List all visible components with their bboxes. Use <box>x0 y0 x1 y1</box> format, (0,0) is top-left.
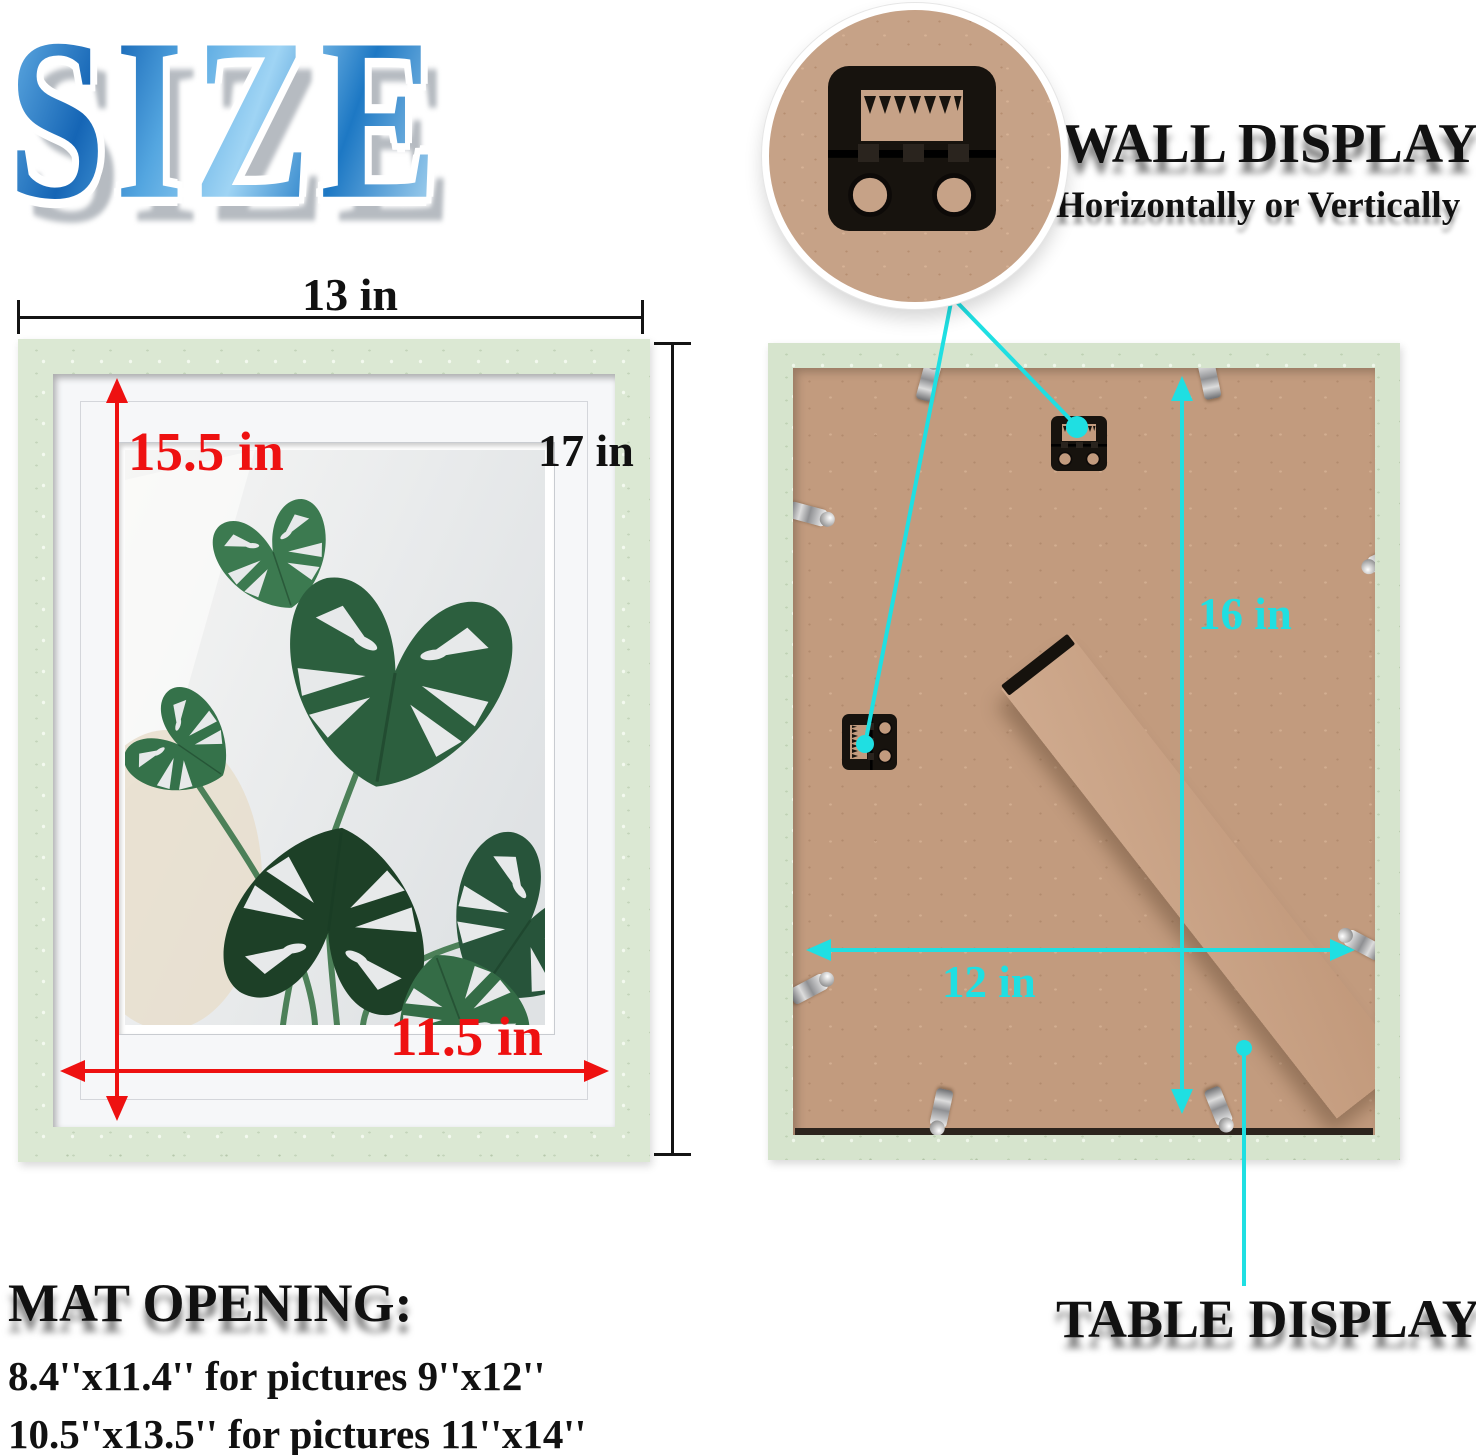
page-title: SIZE SIZE SIZE <box>8 4 528 268</box>
metal-clip-icon <box>793 973 829 1006</box>
product-size-infographic: SIZE SIZE SIZE WALL DISPLAY Horizontally… <box>0 0 1476 1455</box>
front-width-right-tick <box>641 300 644 334</box>
front-width-left-tick <box>17 300 20 334</box>
front-width-dimension-line <box>19 316 643 319</box>
mat-height-arrow <box>103 378 131 1121</box>
mat-width-arrow <box>60 1057 609 1085</box>
mat-opening-heading: MAT OPENING: <box>8 1272 413 1334</box>
back-width-arrow <box>806 936 1355 964</box>
front-height-dimension-line <box>671 342 674 1156</box>
wall-display-subheading: Horizontally or Vertically <box>1056 184 1460 227</box>
kraft-backing-board <box>793 368 1375 1135</box>
callout-line-table-display <box>1242 1048 1246 1286</box>
monstera-plant-photo <box>125 450 545 1025</box>
callout-dot-side-hanger <box>856 735 874 753</box>
metal-clip-icon <box>1204 1085 1234 1127</box>
sawtooth-hanger-icon <box>822 62 1002 238</box>
wall-display-heading: WALL DISPLAY <box>1062 112 1476 176</box>
front-width-dimension-label: 13 in <box>275 268 425 321</box>
page-title-fill: SIZE <box>8 4 447 235</box>
front-height-top-tick <box>654 342 691 345</box>
metal-clip-icon <box>1197 368 1222 400</box>
wall-hanger-inset-circle <box>762 3 1068 309</box>
mat-opening-line-1: 8.4''x11.4'' for pictures 9''x12'' <box>8 1352 545 1400</box>
back-height-arrow <box>1168 376 1196 1114</box>
back-height-dimension-label: 16 in <box>1198 588 1292 640</box>
front-height-bottom-tick <box>654 1153 691 1156</box>
metal-clip-icon <box>1367 542 1375 573</box>
mat-height-label: 15.5 in <box>128 420 284 483</box>
mat-opening-line-2: 10.5''x13.5'' for pictures 11''x14'' <box>8 1410 586 1455</box>
metal-clip-icon <box>929 1088 954 1129</box>
front-height-dimension-label: 17 in <box>538 424 634 477</box>
metal-clip-icon <box>793 501 828 527</box>
backing-bottom-gap <box>795 1128 1373 1135</box>
callout-dot-easel-leg <box>1236 1040 1252 1056</box>
table-display-heading: TABLE DISPLAY <box>1056 1288 1476 1350</box>
callout-dot-top-hanger <box>1066 416 1088 438</box>
easel-hinge-bar <box>1001 634 1075 696</box>
